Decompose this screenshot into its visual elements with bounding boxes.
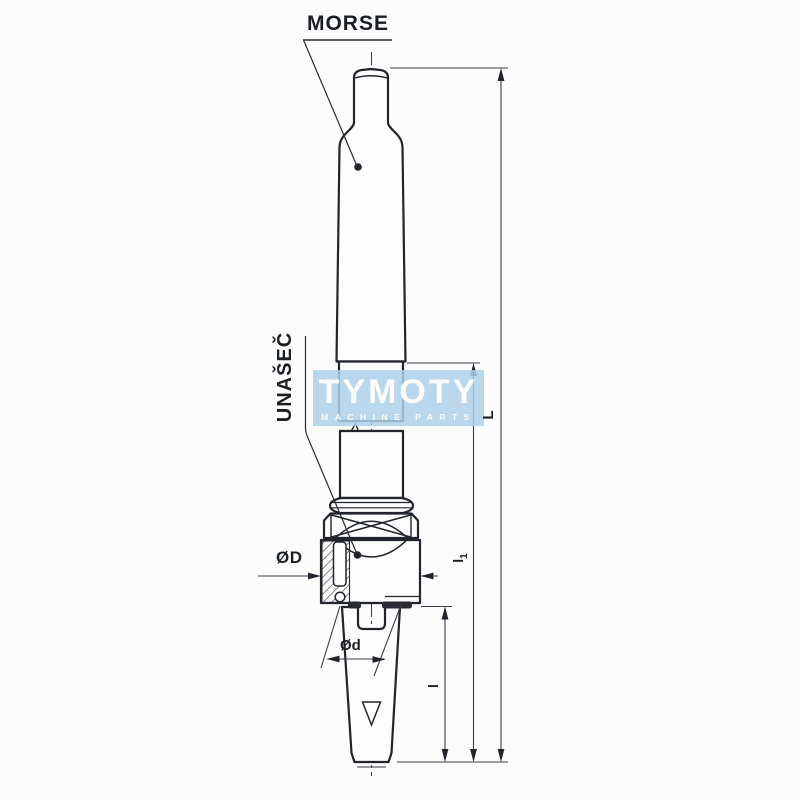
- watermark-tagline: MACHINE PARTS: [321, 413, 476, 422]
- lower-cylinder: [340, 431, 403, 498]
- bead-flange: [330, 498, 413, 513]
- arrow-phiD-right: [421, 573, 434, 580]
- collar-bottom-recess-left: [348, 602, 361, 609]
- morse-leader-dot: [354, 163, 362, 171]
- pin-slot: [334, 542, 347, 586]
- watermark: TYMOTY MACHINE PARTS: [313, 370, 484, 426]
- arrow-L-bottom: [498, 749, 505, 762]
- collar-bottom-recess-right: [382, 602, 412, 609]
- arrow-l-bottom: [442, 749, 449, 762]
- morse-taper-shank: [337, 69, 406, 362]
- arrow-L-top: [498, 68, 505, 81]
- arrow-phid-left: [327, 656, 340, 663]
- drive-pin: [335, 592, 345, 602]
- morse-leader-line: [304, 40, 357, 165]
- drawing-canvas: TYMOTY MACHINE PARTS MORSE UNAŠEČ ØD Ød …: [0, 0, 800, 800]
- unasec-leader-dot: [354, 551, 362, 559]
- arrow-l-top: [442, 607, 449, 620]
- arrow-phiD-left: [308, 573, 321, 580]
- watermark-title: TYMOTY: [319, 375, 479, 409]
- arrow-l1-bottom: [470, 749, 477, 762]
